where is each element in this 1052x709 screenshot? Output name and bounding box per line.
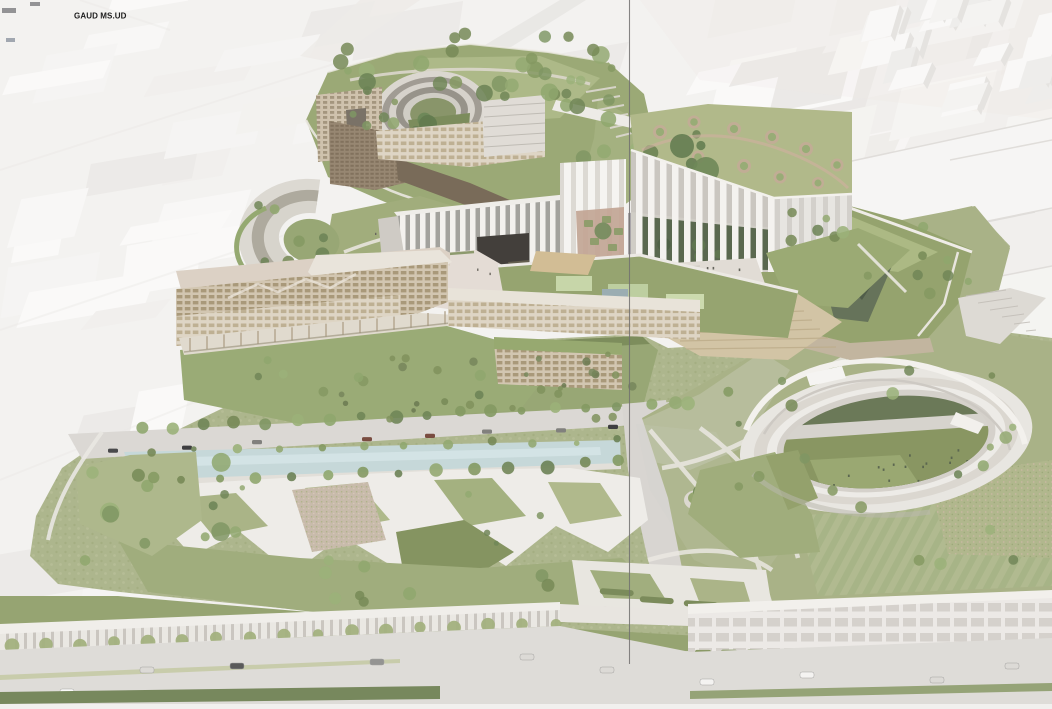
svg-text:GAUD MS.UD: GAUD MS.UD — [74, 12, 127, 21]
